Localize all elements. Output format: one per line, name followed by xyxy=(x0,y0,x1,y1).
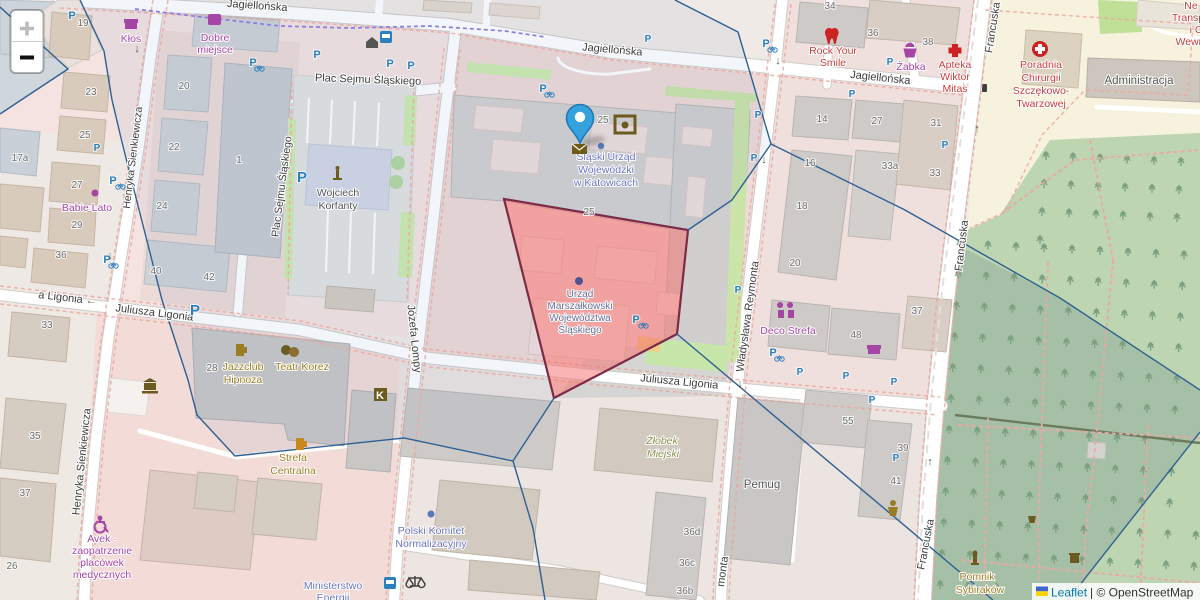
svg-text:23: 23 xyxy=(85,87,97,98)
svg-text:P: P xyxy=(645,34,652,45)
svg-text:Twarzowej: Twarzowej xyxy=(1016,98,1066,110)
svg-text:↓: ↓ xyxy=(761,154,767,166)
svg-text:28: 28 xyxy=(206,363,218,374)
svg-text:Żabka: Żabka xyxy=(896,60,925,73)
svg-text:Transp: Transp xyxy=(1172,12,1200,24)
svg-text:Miejski: Miejski xyxy=(647,448,680,460)
svg-text:P: P xyxy=(797,367,804,378)
svg-text:34: 34 xyxy=(824,1,836,12)
svg-text:w Katowicach: w Katowicach xyxy=(573,177,638,189)
svg-text:↓: ↓ xyxy=(134,43,140,55)
svg-text:P: P xyxy=(891,377,898,388)
svg-text:Centralna: Centralna xyxy=(270,465,316,477)
svg-text:Pemug: Pemug xyxy=(744,479,780,491)
svg-text:Ministerstwo: Ministerstwo xyxy=(304,580,363,592)
svg-text:P: P xyxy=(849,89,856,100)
svg-text:Dobre: Dobre xyxy=(201,32,230,44)
svg-text:Urząd: Urząd xyxy=(567,289,594,300)
svg-text:22: 22 xyxy=(168,142,180,153)
svg-text:Województwa: Województwa xyxy=(549,313,611,324)
svg-text:33a: 33a xyxy=(882,161,899,172)
svg-text:35: 35 xyxy=(29,431,41,442)
svg-text:17a: 17a xyxy=(12,153,29,164)
svg-text:Apteka: Apteka xyxy=(939,59,972,71)
svg-text:36c: 36c xyxy=(679,558,695,569)
svg-text:Wewn: Wewn xyxy=(1176,36,1200,48)
svg-text:↑: ↑ xyxy=(974,123,980,135)
svg-text:25: 25 xyxy=(597,115,609,126)
svg-text:Normalizacyjny: Normalizacyjny xyxy=(395,538,467,550)
svg-text:36: 36 xyxy=(55,250,67,261)
svg-text:miejsce: miejsce xyxy=(197,44,233,56)
svg-text:20: 20 xyxy=(178,81,190,92)
svg-text:16: 16 xyxy=(804,158,816,169)
svg-text:Babie Lato: Babie Lato xyxy=(62,202,112,214)
svg-text:1: 1 xyxy=(236,155,242,166)
svg-text:41: 41 xyxy=(890,476,902,487)
svg-text:i C: i C xyxy=(1190,24,1200,36)
svg-text:↓: ↓ xyxy=(737,378,743,390)
svg-text:38: 38 xyxy=(922,37,934,48)
svg-text:Wojewódzki: Wojewódzki xyxy=(578,164,634,176)
svg-text:P: P xyxy=(755,110,762,121)
svg-text:Teatr Korez: Teatr Korez xyxy=(275,361,329,373)
svg-text:Strefa: Strefa xyxy=(279,452,307,464)
svg-text:Poradnia: Poradnia xyxy=(1020,59,1062,71)
svg-text:Energii: Energii xyxy=(317,592,350,600)
svg-text:K: K xyxy=(376,390,384,402)
svg-text:P: P xyxy=(109,175,116,187)
svg-text:P: P xyxy=(313,49,320,61)
svg-text:P: P xyxy=(887,57,894,68)
svg-text:55: 55 xyxy=(842,416,854,427)
svg-text:Żłobek: Żłobek xyxy=(645,435,678,447)
svg-text:29: 29 xyxy=(71,220,83,231)
svg-text:Wojciech: Wojciech xyxy=(317,187,360,199)
svg-text:48: 48 xyxy=(850,330,862,341)
svg-text:P: P xyxy=(869,395,876,406)
svg-text:25: 25 xyxy=(79,130,91,141)
svg-text:Deco Strefa: Deco Strefa xyxy=(760,325,816,337)
svg-text:Hipnoza: Hipnoza xyxy=(224,374,263,386)
svg-text:Administracja: Administracja xyxy=(1104,75,1174,87)
svg-text:↑: ↑ xyxy=(927,456,933,468)
svg-text:Pomnik: Pomnik xyxy=(959,571,995,583)
svg-text:P: P xyxy=(735,285,742,296)
svg-text:medycznych: medycznych xyxy=(73,569,132,581)
svg-text:Korfanty: Korfanty xyxy=(318,200,358,212)
svg-text:40: 40 xyxy=(150,266,162,277)
svg-text:P: P xyxy=(942,140,949,151)
svg-text:Smile: Smile xyxy=(820,57,846,69)
svg-text:P: P xyxy=(751,153,758,164)
svg-text:Sybiraków: Sybiraków xyxy=(956,584,1005,596)
svg-text:P: P xyxy=(386,58,393,70)
svg-text:Rock Your: Rock Your xyxy=(809,45,857,57)
svg-text:P: P xyxy=(297,169,307,186)
svg-text:P: P xyxy=(68,10,75,22)
svg-text:37: 37 xyxy=(19,488,31,499)
svg-text:Ne: Ne xyxy=(1184,0,1198,12)
svg-text:27: 27 xyxy=(871,116,883,127)
svg-text:Szczękowo-: Szczękowo- xyxy=(1013,85,1070,97)
svg-text:14: 14 xyxy=(816,114,828,125)
svg-text:36d: 36d xyxy=(684,527,701,538)
svg-text:33: 33 xyxy=(41,320,53,331)
svg-text:| © OpenStreetMap: | © OpenStreetMap xyxy=(1090,586,1194,600)
svg-text:↓: ↓ xyxy=(107,250,113,262)
svg-text:Śląskiego: Śląskiego xyxy=(558,323,602,336)
svg-text:P: P xyxy=(893,453,900,464)
svg-text:19: 19 xyxy=(77,18,89,29)
svg-text:P: P xyxy=(843,371,850,382)
svg-text:20: 20 xyxy=(789,258,801,269)
svg-text:25: 25 xyxy=(583,207,595,218)
svg-text:zaopatrzenie: zaopatrzenie xyxy=(72,545,132,557)
svg-text:Mitas: Mitas xyxy=(942,83,967,95)
svg-text:36: 36 xyxy=(867,28,879,39)
svg-text:33: 33 xyxy=(929,168,941,179)
svg-text:36b: 36b xyxy=(677,586,694,597)
svg-text:P: P xyxy=(632,314,639,326)
svg-text:37: 37 xyxy=(911,306,923,317)
svg-text:Marszałkowski: Marszałkowski xyxy=(547,301,612,312)
svg-text:P: P xyxy=(407,60,414,72)
svg-text:P: P xyxy=(190,302,200,319)
svg-text:Avek ·: Avek · xyxy=(87,533,117,545)
svg-text:18: 18 xyxy=(796,201,808,212)
svg-text:Chirurgii: Chirurgii xyxy=(1021,72,1060,84)
svg-text:Leaflet: Leaflet xyxy=(1051,586,1088,600)
svg-text:Jazzclub: Jazzclub xyxy=(223,361,264,373)
svg-text:27: 27 xyxy=(71,180,83,191)
svg-text:placówek: placówek xyxy=(80,557,125,569)
svg-text:Wiktor: Wiktor xyxy=(940,71,970,83)
svg-text:↓: ↓ xyxy=(775,55,781,67)
svg-text:42: 42 xyxy=(203,272,215,283)
svg-text:P: P xyxy=(94,143,101,154)
svg-text:26: 26 xyxy=(6,561,18,572)
svg-text:31: 31 xyxy=(930,118,942,129)
svg-text:Polski Komitet: Polski Komitet xyxy=(398,525,465,537)
svg-text:24: 24 xyxy=(156,201,168,212)
